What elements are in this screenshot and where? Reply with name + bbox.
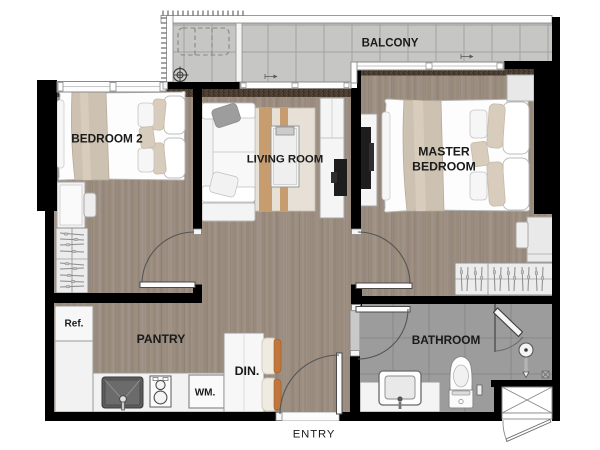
svg-text:ENTRY: ENTRY	[293, 429, 336, 441]
svg-text:PANTRY: PANTRY	[137, 332, 186, 346]
svg-text:DIN.: DIN.	[235, 364, 260, 378]
svg-text:BALCONY: BALCONY	[362, 38, 419, 50]
svg-text:BATHROOM: BATHROOM	[412, 333, 481, 347]
svg-text:WM.: WM.	[195, 388, 216, 399]
svg-text:BEDROOM: BEDROOM	[412, 160, 476, 174]
svg-text:MASTER: MASTER	[418, 145, 470, 159]
svg-text:LIVING ROOM: LIVING ROOM	[247, 154, 324, 166]
svg-text:BEDROOM 2: BEDROOM 2	[71, 132, 143, 146]
svg-text:Ref.: Ref.	[65, 319, 84, 330]
